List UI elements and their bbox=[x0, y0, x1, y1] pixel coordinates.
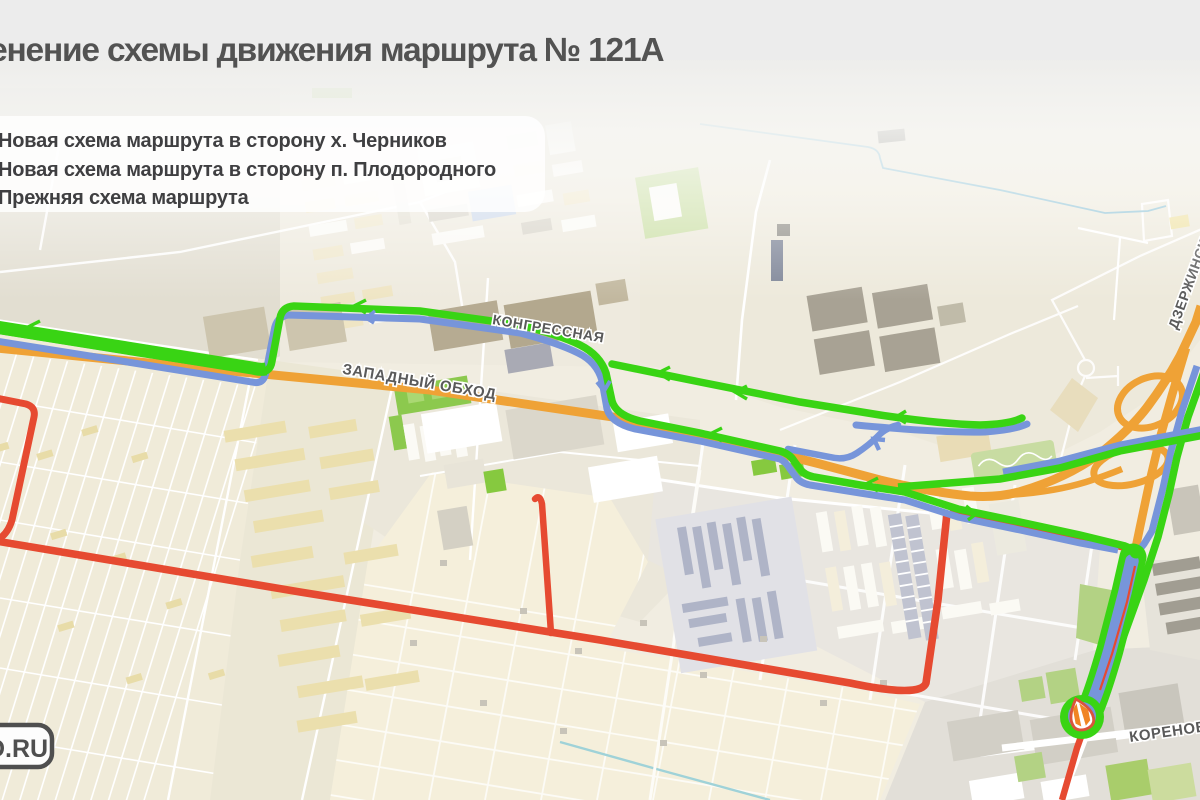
svg-text:Изменение схемы движения маршр: Изменение схемы движения маршрута № 121А bbox=[0, 32, 664, 69]
svg-text:D.RU: D.RU bbox=[0, 735, 48, 763]
svg-text:Новая схема маршрута в сторону: Новая схема маршрута в сторону х. Черник… bbox=[0, 130, 447, 152]
svg-text:Новая схема маршрута в сторону: Новая схема маршрута в сторону п. Плодор… bbox=[0, 159, 496, 181]
svg-text:Прежняя схема маршрута: Прежняя схема маршрута bbox=[0, 187, 250, 209]
